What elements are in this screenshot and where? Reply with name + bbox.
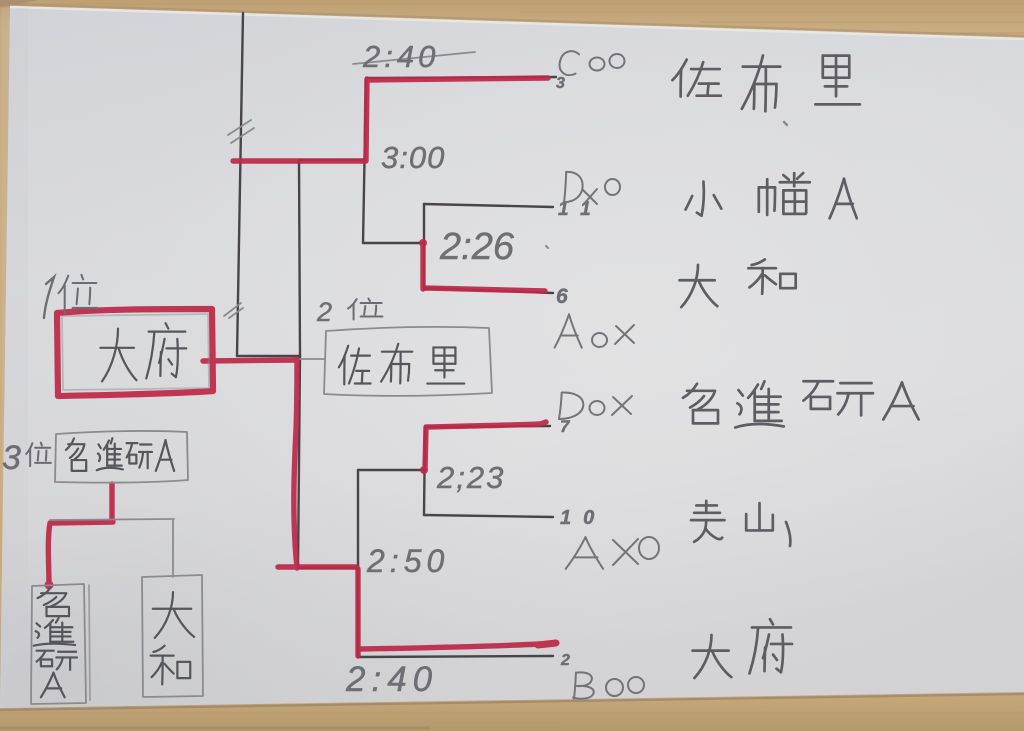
svg-text:10: 10 <box>560 507 606 529</box>
svg-text:3: 3 <box>556 75 565 92</box>
svg-text:2:40: 2:40 <box>345 660 438 699</box>
svg-text:2:26: 2:26 <box>439 226 515 268</box>
svg-text:6: 6 <box>556 285 568 308</box>
svg-text:2: 2 <box>560 652 570 669</box>
svg-text:2: 2 <box>316 297 332 327</box>
svg-text:3:00: 3:00 <box>381 140 445 175</box>
svg-text:3: 3 <box>2 439 21 477</box>
svg-text:2:50: 2:50 <box>366 543 449 579</box>
svg-text:2:40: 2:40 <box>362 39 439 74</box>
svg-text:2;23: 2;23 <box>436 460 505 495</box>
